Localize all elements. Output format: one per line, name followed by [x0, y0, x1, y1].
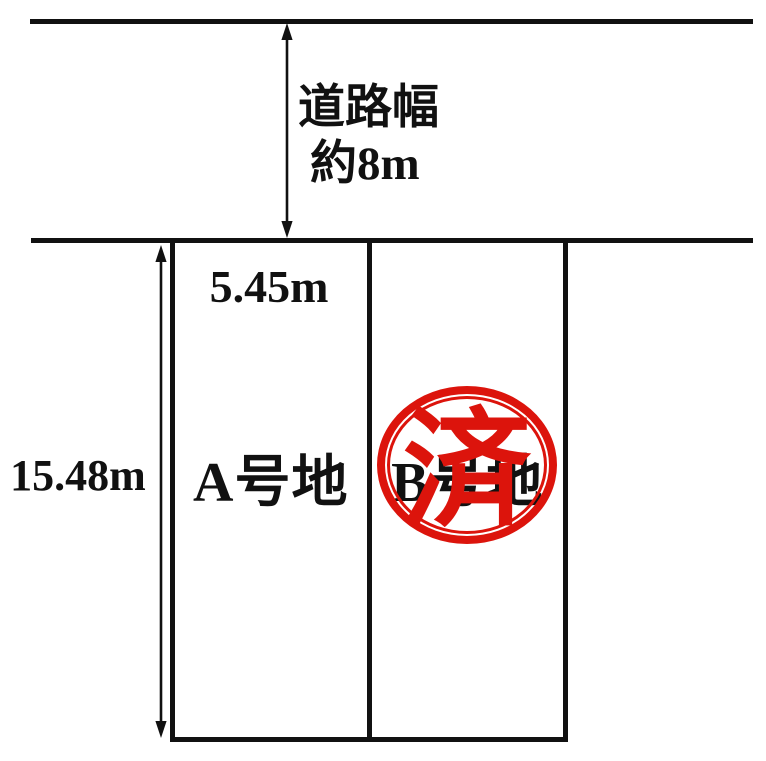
road-width-label-line2: 約8m: [298, 136, 439, 192]
sold-stamp: 済: [377, 386, 557, 544]
road-width-label-line1: 道路幅: [298, 80, 439, 136]
road-width-arrow: [281, 23, 292, 238]
road-top-edge-line: [30, 19, 753, 24]
depth-dimension-label: 15.48m: [2, 450, 154, 501]
plot-a-label: A号地: [175, 437, 367, 518]
sold-stamp-text: 済: [403, 407, 531, 535]
land-plot-diagram: 道路幅 約8m A号地 B号地 5.45m 15.48m: [0, 0, 766, 761]
plot-a: A号地: [175, 243, 372, 737]
road-width-label: 道路幅 約8m: [298, 80, 439, 192]
depth-arrow: [155, 245, 166, 738]
frontage-dimension-label: 5.45m: [170, 260, 368, 313]
